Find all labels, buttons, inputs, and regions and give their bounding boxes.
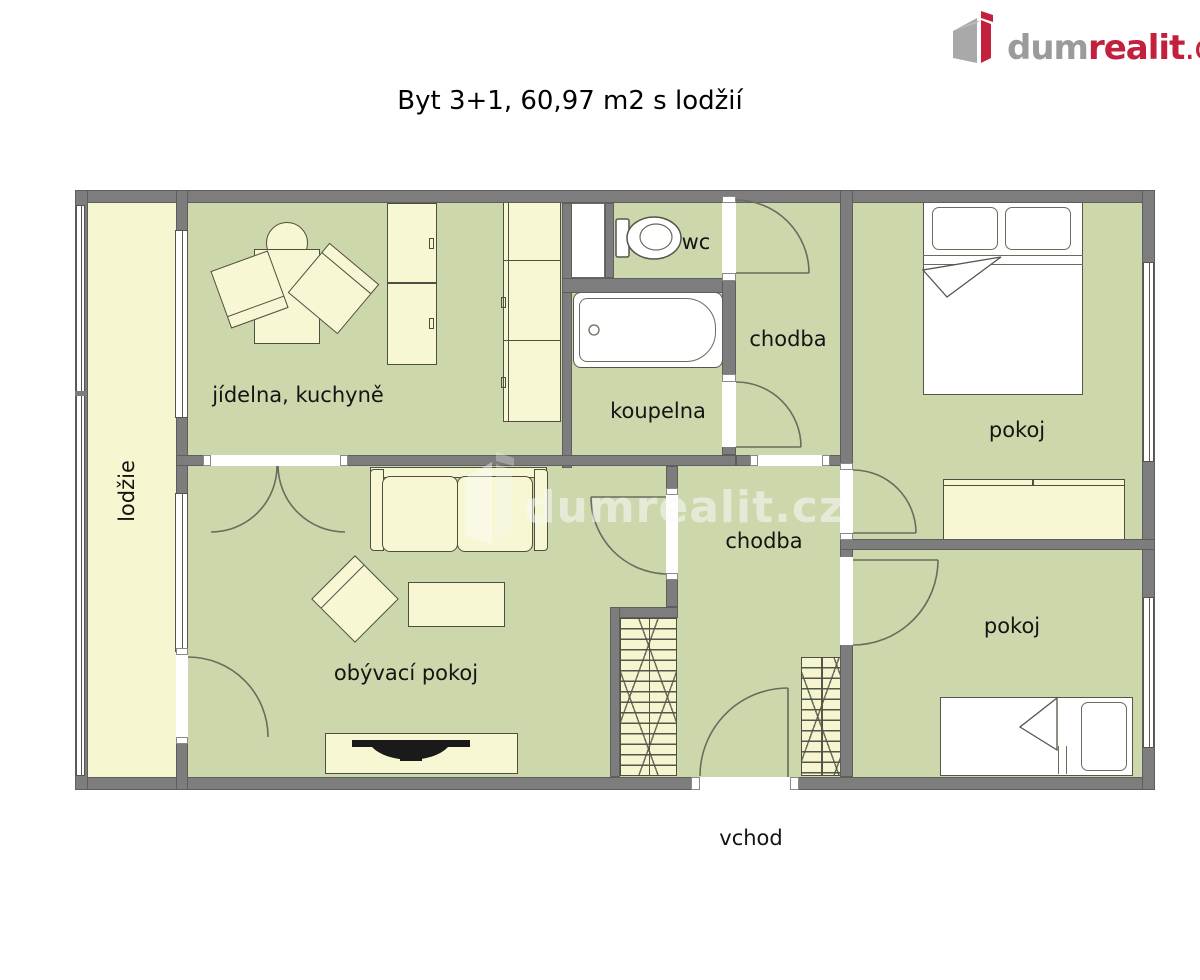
- room-label-bedroom-top: pokoj: [989, 418, 1045, 442]
- door-jamb: [176, 648, 188, 655]
- hall-wardrobe-right: [801, 657, 841, 776]
- wall: [840, 539, 1155, 550]
- loggia-glazing-window: [76, 205, 85, 776]
- wall: [75, 777, 700, 790]
- kitchen-cabinet-right: [503, 202, 561, 422]
- door-opening: [666, 495, 678, 573]
- room-label-hall-main: chodba: [725, 529, 802, 553]
- bedroom-bottom-window: [1143, 597, 1154, 748]
- door-jamb: [822, 455, 830, 466]
- door-opening: [840, 470, 853, 533]
- wall: [75, 190, 1155, 203]
- entrance-label: vchod: [719, 826, 782, 850]
- kitchen-cabinet-left: [387, 203, 437, 365]
- utility-shaft: [570, 203, 605, 278]
- sofa: [370, 467, 548, 553]
- room-label-hall-top: chodba: [749, 327, 826, 351]
- wall: [610, 607, 678, 618]
- bathtub: [573, 292, 723, 368]
- room-label-wc: wc: [682, 230, 711, 254]
- door-jamb: [840, 533, 853, 540]
- door-opening: [840, 557, 853, 645]
- door-opening: [722, 203, 736, 273]
- wall: [562, 278, 736, 293]
- door-jamb: [691, 777, 700, 790]
- kitchen-window: [175, 230, 188, 418]
- door-jamb: [790, 777, 799, 790]
- door-jamb: [840, 463, 853, 470]
- single-bed: [940, 697, 1133, 776]
- bedroom-top-window: [1143, 262, 1154, 462]
- room-label-bathroom: koupelna: [610, 399, 706, 423]
- wall: [605, 203, 614, 278]
- hall-wardrobe-left: [620, 618, 677, 776]
- door-jamb: [666, 488, 678, 495]
- floorplan-page: dumrealit.cz Byt 3+1, 60,97 m2 s lodžií: [0, 0, 1200, 980]
- door-jamb: [666, 573, 678, 580]
- door-opening: [176, 655, 188, 737]
- door-jamb: [722, 374, 736, 382]
- living-room-window: [175, 493, 188, 652]
- window-divider: [75, 391, 85, 396]
- double-bed: [923, 202, 1083, 395]
- passage-opening: [758, 455, 822, 466]
- room-label-loggia: lodžie: [115, 460, 139, 522]
- wall: [790, 777, 1155, 790]
- door-jamb: [750, 455, 758, 466]
- door-jamb: [340, 455, 348, 466]
- wall: [562, 203, 572, 468]
- dumrealit-logo-text: dumrealit.cz: [1007, 31, 1200, 65]
- wall: [610, 607, 620, 777]
- door-jamb: [203, 455, 211, 466]
- page-title: Byt 3+1, 60,97 m2 s lodžií: [320, 86, 820, 116]
- door-jamb: [722, 196, 736, 203]
- door-jamb: [176, 737, 188, 744]
- tv-stand: [325, 733, 518, 774]
- door-opening: [204, 455, 347, 466]
- dumrealit-logo-icon: [951, 11, 995, 65]
- door-jamb: [722, 273, 736, 281]
- entrance-opening: [700, 777, 790, 790]
- dumrealit-logo[interactable]: dumrealit.cz: [951, 11, 1200, 65]
- coffee-table: [408, 582, 505, 627]
- room-label-bedroom-bottom: pokoj: [984, 614, 1040, 638]
- room-label-living-room: obývací pokoj: [334, 661, 478, 685]
- door-opening: [722, 382, 736, 447]
- room-label-kitchen: jídelna, kuchyně: [212, 383, 384, 407]
- bedroom-dresser: [943, 479, 1125, 540]
